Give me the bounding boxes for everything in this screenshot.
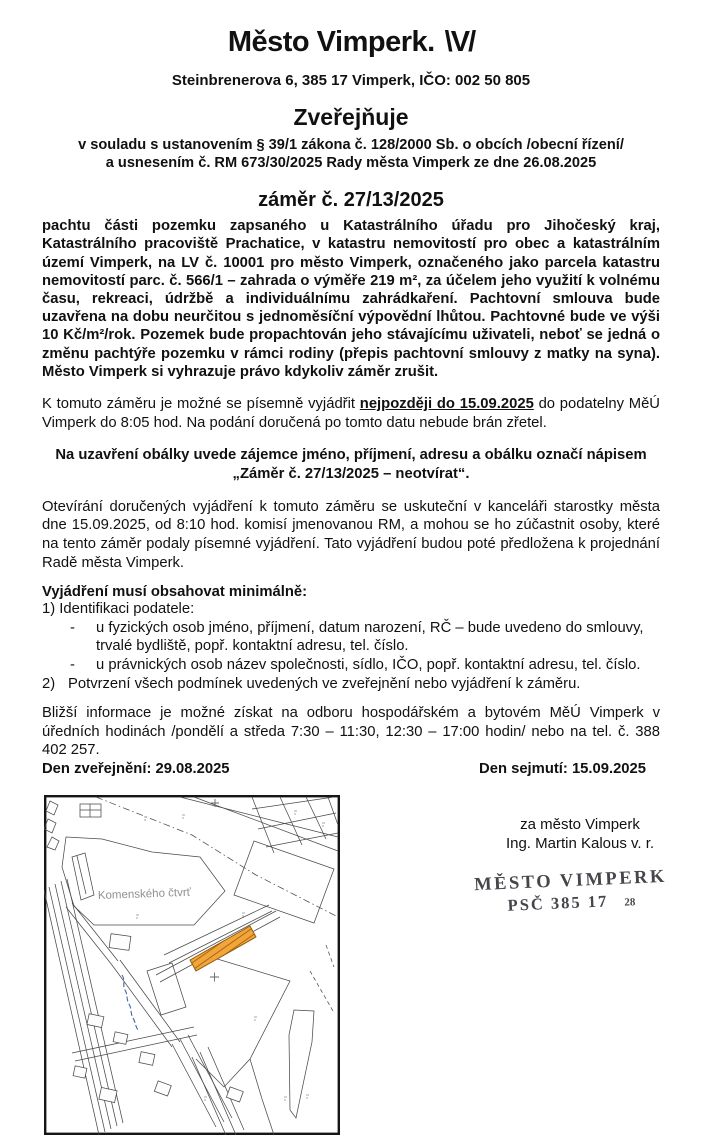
envelope-line-1: Na uzavření obálky uvede zájemce jméno, … (42, 446, 660, 465)
response-prefix: K tomuto záměru je možné se písemně vyjá… (42, 396, 355, 412)
publication-date: Den zveřejnění: 29.08.2025 (42, 761, 230, 777)
city-title: Město Vimperk. (228, 26, 435, 58)
bottom-section: Komenského čtvrť za město Vimperk Ing. M… (42, 787, 660, 1139)
dates-row: Den zveřejnění: 29.08.2025 Den sejmutí: … (42, 761, 660, 777)
intent-number-heading: záměr č. 27/13/2025 (42, 189, 660, 212)
requirement-item-2-text: Potvrzení všech podmínek uvedených ve zv… (68, 675, 660, 694)
publishes-heading: Zveřejňuje (42, 104, 660, 131)
city-logo-mark: \V/ (445, 26, 474, 58)
info-paragraph: Bližší informace je možné získat na odbo… (42, 704, 660, 760)
requirements-heading: Vyjádření musí obsahovat minimálně: (42, 584, 660, 600)
intent-description: pachtu části pozemku zapsaného u Katastr… (42, 217, 660, 381)
cadastral-map-image: Komenského čtvrť (44, 795, 340, 1135)
stamp-number: 28 (624, 896, 636, 908)
requirement-item-1: 1) Identifikaci podatele: (42, 600, 660, 619)
stamp-postal-code: PSČ 385 17 (507, 892, 608, 916)
signature-block: za město Vimperk Ing. Martin Kalous v. r… (460, 815, 700, 853)
dash-marker: - (68, 656, 96, 675)
envelope-instruction: Na uzavření obálky uvede zájemce jméno, … (42, 446, 660, 484)
response-deadline: nejpozději do 15.09.2025 (360, 396, 534, 412)
legal-line-1: v souladu s ustanovením § 39/1 zákona č.… (42, 137, 660, 155)
item-2-marker: 2) (42, 675, 68, 694)
legal-basis: v souladu s ustanovením § 39/1 zákona č.… (42, 137, 660, 172)
dash-marker: - (68, 619, 96, 657)
removal-date: Den sejmutí: 15.09.2025 (479, 761, 660, 777)
announcement-document: Město Vimperk.\V/ Steinbrenerova 6, 385 … (0, 0, 703, 1100)
signature-on-behalf: za město Vimperk (460, 815, 700, 834)
cadastral-map: Komenského čtvrť (44, 795, 340, 1135)
city-address: Steinbrenerova 6, 385 17 Vimperk, IČO: 0… (42, 72, 660, 89)
document-title: Město Vimperk.\V/ (42, 26, 660, 59)
requirement-sub-1: - u fyzických osob jméno, příjmení, datu… (68, 619, 660, 657)
requirement-sub-1-text: u fyzických osob jméno, příjmení, datum … (96, 619, 660, 657)
envelope-line-2: „Záměr č. 27/13/2025 – neotvírat“. (42, 465, 660, 484)
requirement-item-2: 2) Potvrzení všech podmínek uvedených ve… (42, 675, 660, 694)
requirement-sub-2: - u právnických osob název společnosti, … (68, 656, 660, 675)
legal-line-2: a usnesením č. RM 673/30/2025 Rady města… (42, 155, 660, 173)
response-paragraph: K tomuto záměru je možné se písemně vyjá… (42, 395, 660, 433)
city-stamp: MĚSTO VIMPERK PSČ 385 17 28 (445, 866, 697, 919)
opening-paragraph: Otevírání doručených vyjádření k tomuto … (42, 498, 660, 573)
signature-name: Ing. Martin Kalous v. r. (460, 834, 700, 853)
requirement-sub-2-text: u právnických osob název společnosti, sí… (96, 656, 660, 675)
